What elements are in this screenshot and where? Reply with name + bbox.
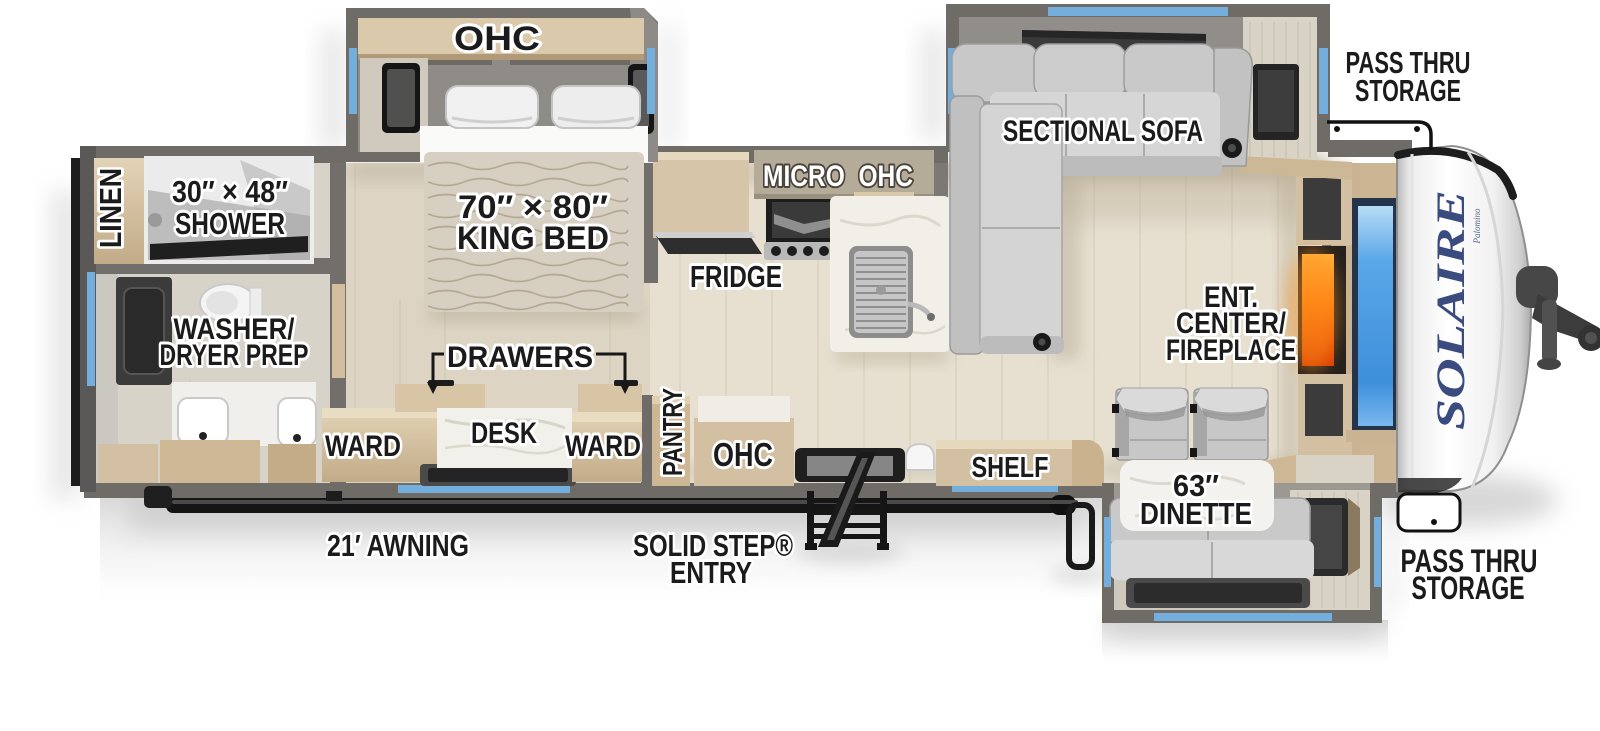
svg-text:FIREPLACE: FIREPLACE (1166, 334, 1296, 367)
svg-text:Palomino: Palomino (1472, 208, 1482, 244)
svg-text:DRYER PREP: DRYER PREP (160, 339, 309, 372)
svg-text:KING BED: KING BED (457, 220, 609, 256)
svg-text:ENTRY: ENTRY (670, 555, 752, 590)
svg-text:WARD: WARD (565, 430, 641, 463)
svg-text:SHELF: SHELF (972, 452, 1049, 484)
svg-text:FRIDGE: FRIDGE (690, 259, 782, 294)
svg-text:30″ × 48″: 30″ × 48″ (172, 174, 288, 209)
svg-text:STORAGE: STORAGE (1412, 570, 1525, 606)
svg-text:WARD: WARD (325, 430, 401, 463)
svg-text:SECTIONAL SOFA: SECTIONAL SOFA (1003, 115, 1203, 148)
svg-text:OHC: OHC (454, 20, 540, 58)
svg-text:PANTRY: PANTRY (657, 388, 688, 476)
svg-text:OHC: OHC (713, 436, 773, 473)
svg-text:SOLAIRE: SOLAIRE (1428, 190, 1473, 430)
svg-text:STORAGE: STORAGE (1355, 73, 1461, 108)
svg-text:MICRO OHC: MICRO OHC (763, 160, 913, 193)
svg-text:LINEN: LINEN (93, 168, 128, 248)
svg-text:SHOWER: SHOWER (175, 206, 285, 241)
svg-text:DESK: DESK (471, 417, 537, 450)
svg-text:DRAWERS: DRAWERS (447, 341, 593, 374)
svg-text:21′ AWNING: 21′ AWNING (327, 528, 469, 563)
svg-text:DINETTE: DINETTE (1140, 496, 1252, 531)
